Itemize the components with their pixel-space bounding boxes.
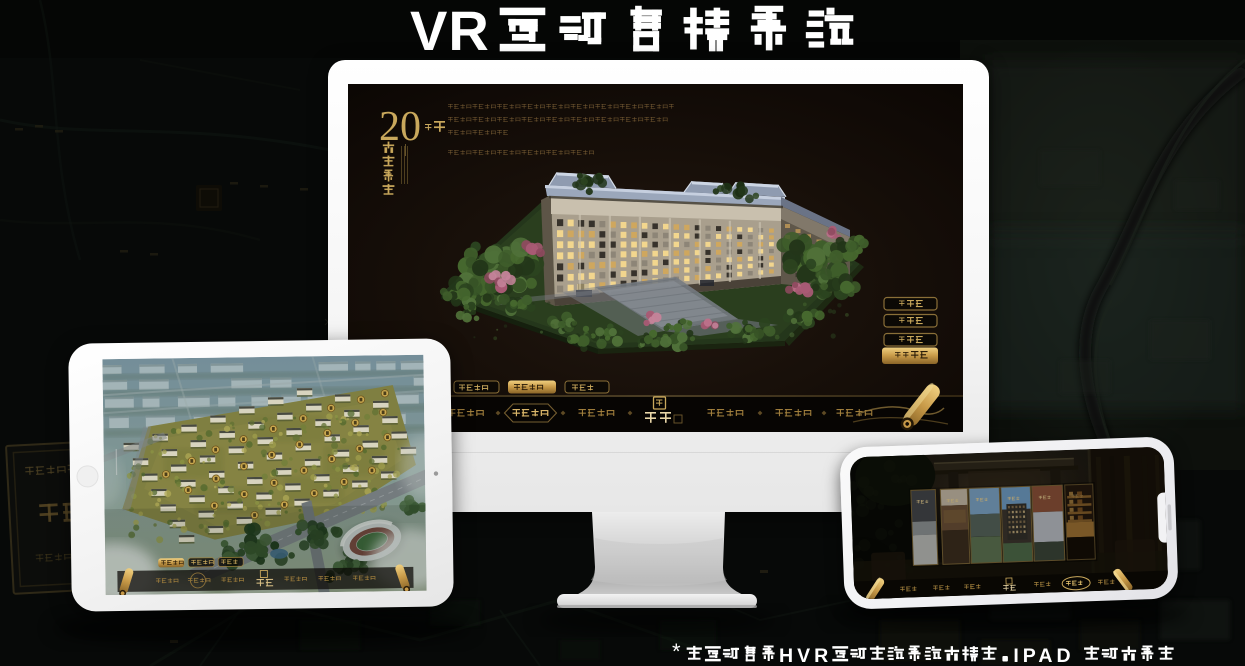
svg-text:IPAD: IPAD [1013,645,1074,666]
svg-text:VR: VR [410,0,490,60]
svg-text:20: 20 [379,104,421,150]
svg-text:*: * [672,643,681,664]
svg-text:HVR: HVR [779,645,832,666]
